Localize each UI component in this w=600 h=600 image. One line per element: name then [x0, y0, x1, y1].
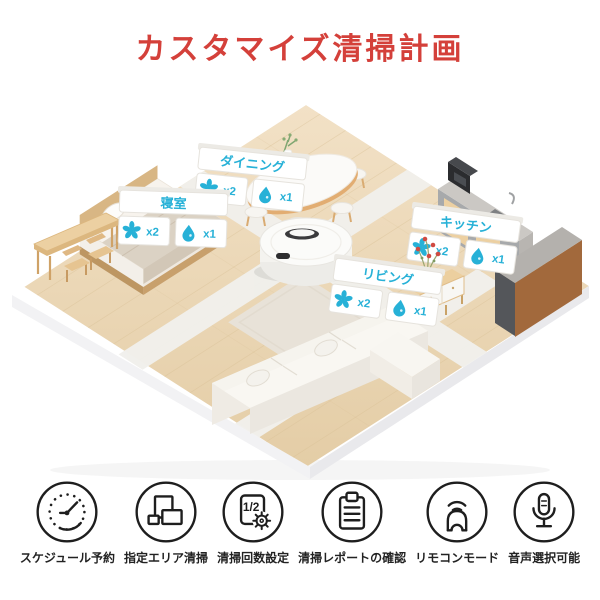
voice-mic-icon	[511, 479, 577, 545]
robot-side-port	[276, 253, 290, 259]
feature-label: 指定エリア清掃	[124, 549, 208, 566]
schedule-clock-icon	[34, 479, 100, 545]
product-image-canvas: カスタマイズ清掃計画	[0, 0, 600, 600]
feature-label: 音声選択可能	[508, 549, 580, 566]
feature-clean-count: 1/2 清掃回数設定	[217, 479, 289, 566]
fan-count: x2	[146, 226, 159, 238]
water-count: x1	[203, 228, 217, 240]
area-map-icon	[133, 479, 199, 545]
feature-label: スケジュール予約	[20, 549, 115, 566]
room-label-bedroom: 寝室	[160, 195, 187, 211]
feature-list: スケジュール予約 指定エリア清掃 1/2	[0, 479, 600, 566]
water-count: x1	[279, 191, 294, 204]
fan-count: x2	[435, 245, 449, 259]
remote-control-icon	[424, 479, 490, 545]
feature-label: 清掃レポートの確認	[298, 549, 406, 566]
feature-remote-mode: リモコンモード	[415, 479, 499, 566]
feature-voice-select: 音声選択可能	[508, 479, 580, 566]
water-count: x1	[413, 305, 428, 319]
feature-area-cleaning: 指定エリア清掃	[124, 479, 208, 566]
report-clipboard-icon	[319, 479, 385, 545]
feature-label: リモコンモード	[415, 549, 499, 566]
page-title: カスタマイズ清掃計画	[0, 24, 600, 68]
isometric-floorplan-scene: ダイニング x2 x1 寝室 x2 x1 キッチン	[0, 90, 600, 480]
gear-icon	[253, 512, 271, 530]
fan-count: x2	[357, 297, 371, 311]
kitchen-faucet	[509, 193, 514, 204]
count-icon-text: 1/2	[243, 500, 260, 514]
feature-clean-report: 清掃レポートの確認	[298, 479, 406, 566]
count-setting-icon: 1/2	[220, 479, 286, 545]
feature-schedule: スケジュール予約	[20, 479, 115, 566]
water-count: x1	[491, 253, 506, 267]
feature-label: 清掃回数設定	[217, 549, 289, 566]
